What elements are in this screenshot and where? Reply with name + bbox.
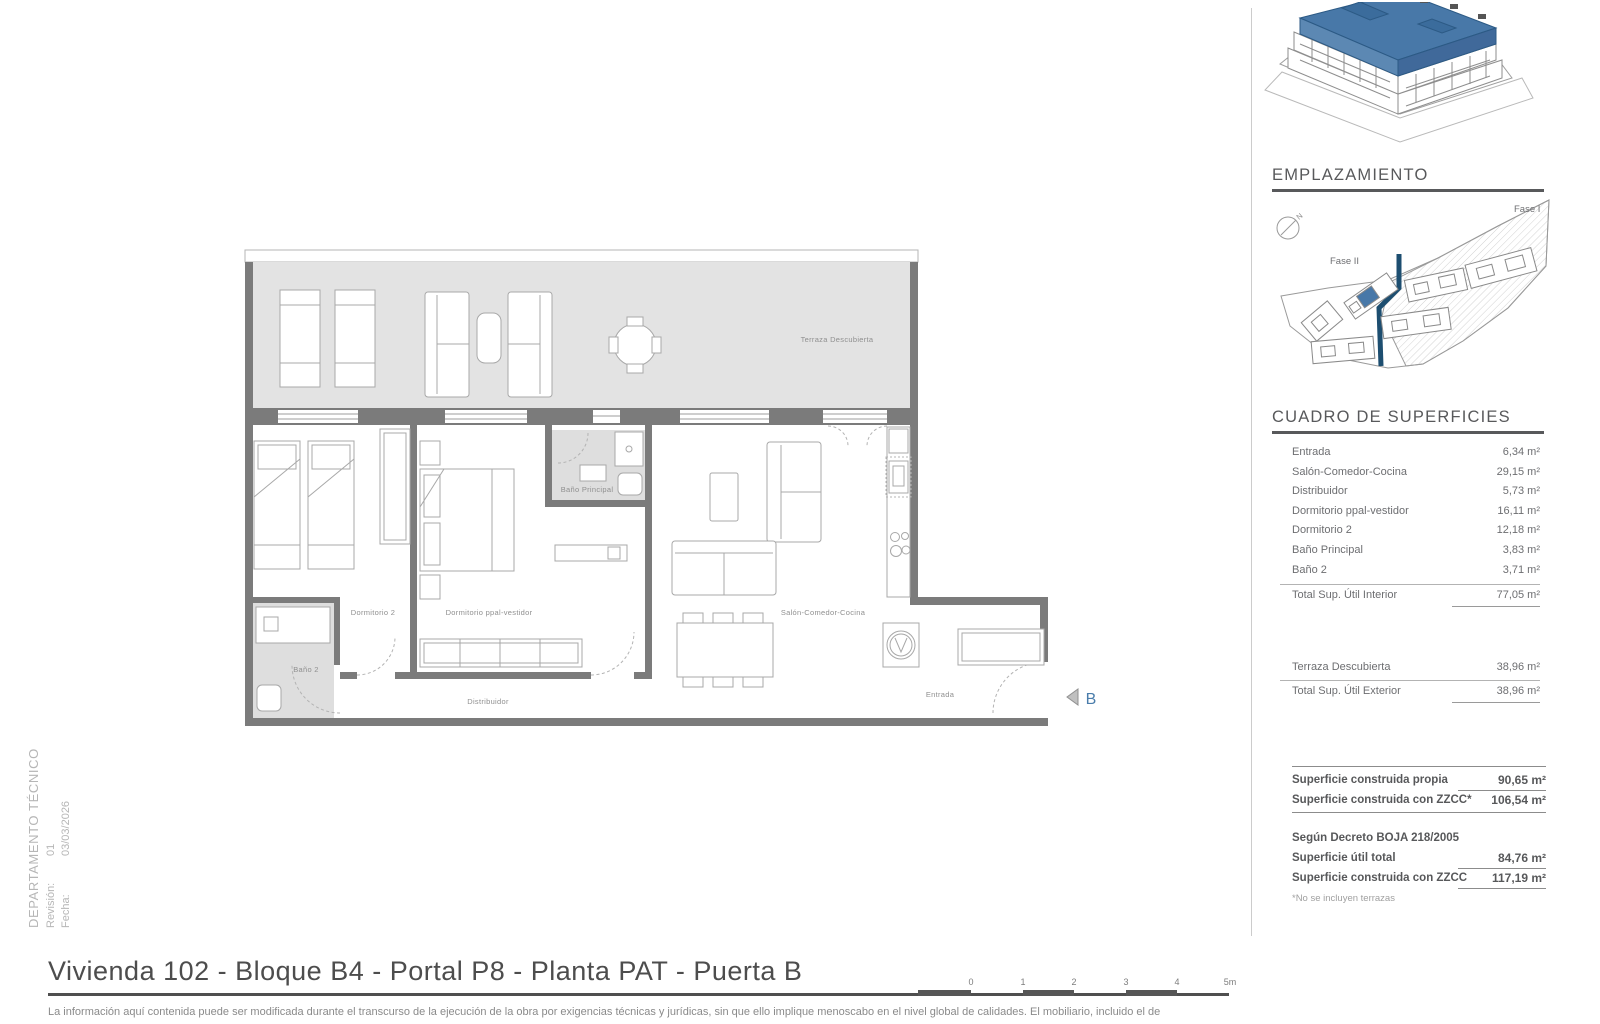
room-label-distribuidor: Distribuidor: [467, 697, 509, 706]
fridge-icon: [889, 429, 908, 453]
total-value: 38,96 m²: [1497, 682, 1540, 702]
summary-value: 90,65 m²: [1498, 770, 1546, 790]
scale-tick: 2: [1071, 977, 1076, 987]
summary-underline: [1458, 888, 1546, 889]
wall-left: [245, 425, 253, 725]
row-value: 6,34 m²: [1503, 443, 1540, 463]
room-label-entrada: Entrada: [926, 690, 955, 699]
summary-underline: [1458, 790, 1546, 791]
legal-disclaimer: La información aquí contenida puede ser …: [48, 1006, 1212, 1018]
summary-value: 106,54 m²: [1491, 790, 1546, 810]
total-interior-row: Total Sup. Útil Interior77,05 m²: [1292, 586, 1540, 606]
row-value: 16,11 m²: [1497, 502, 1540, 522]
wall-bano2: [245, 597, 340, 603]
terrace-parapet: [245, 250, 918, 262]
summary-label: Superficie construida con ZZCC: [1292, 868, 1467, 888]
scale-segment: [918, 990, 971, 996]
sheet-title: Vivienda 102 - Bloque B4 - Portal P8 - P…: [48, 956, 802, 987]
table-row: Entrada6,34 m²: [1292, 443, 1540, 463]
row-label: Baño 2: [1292, 561, 1327, 581]
row-value: 29,15 m²: [1497, 463, 1540, 483]
wall-corridor: [634, 672, 652, 679]
summary-value: 117,19 m²: [1492, 868, 1546, 888]
row-label: Terraza Descubierta: [1292, 658, 1390, 678]
table-separator: [1280, 680, 1540, 681]
dining-set: [677, 613, 773, 687]
wall-corridor: [340, 672, 357, 679]
table-row: Salón-Comedor-Cocina29,15 m²: [1292, 463, 1540, 483]
wall-bano2: [334, 603, 340, 665]
summary-underline: [1458, 868, 1546, 869]
row-label: Dormitorio 2: [1292, 521, 1352, 541]
scale-tick: 0: [968, 977, 973, 987]
door-marker-letter: B: [1086, 691, 1097, 708]
total-label: Total Sup. Útil Exterior: [1292, 682, 1401, 702]
room-label-salon: Salón-Comedor-Cocina: [781, 608, 866, 617]
table-separator: [1280, 584, 1540, 585]
dormppal-door-arc: [591, 632, 634, 675]
fase2-label: Fase II: [1330, 256, 1359, 267]
table-row: Baño 23,71 m²: [1292, 561, 1540, 581]
row-label: Salón-Comedor-Cocina: [1292, 463, 1407, 483]
total-exterior-row: Total Sup. Útil Exterior38,96 m²: [1292, 682, 1540, 702]
row-label: Baño Principal: [1292, 541, 1363, 561]
revision-value: 01: [45, 844, 57, 856]
terrace-wall-right: [910, 262, 918, 408]
sheet-margin-info: DEPARTAMENTO TÉCNICO Revisión:01 Fecha:0…: [26, 688, 74, 928]
wall-bano-principal: [545, 500, 652, 507]
toilet-icon: [618, 473, 642, 495]
table-row: Dormitorio 212,18 m²: [1292, 521, 1540, 541]
coffee-table: [710, 473, 738, 521]
room-label-terraza: Terraza Descubierta: [801, 335, 874, 344]
wall-dormppal-salon: [645, 425, 652, 679]
wall-bano-principal: [545, 425, 552, 507]
summary-label: Superficie útil total: [1292, 848, 1396, 868]
revision-label: Revisión:: [44, 856, 59, 928]
summary-bottom-line: [1292, 812, 1546, 813]
summary-footnote: *No se incluyen terrazas: [1292, 893, 1395, 904]
superficies-table: Entrada6,34 m² Salón-Comedor-Cocina29,15…: [1292, 443, 1540, 580]
row-label: Entrada: [1292, 443, 1331, 463]
total-value: 77,05 m²: [1497, 586, 1540, 606]
superficies-rule: [1272, 431, 1544, 434]
room-label-bano-principal: Baño Principal: [561, 485, 614, 494]
date-label: Fecha:: [59, 856, 74, 928]
site-map: N Fase I Fase II: [1268, 196, 1558, 388]
date-value: 03/03/2026: [60, 801, 72, 856]
table-row: Baño Principal3,83 m²: [1292, 541, 1540, 561]
wall-corridor: [395, 672, 591, 679]
washing-machine-icon: [883, 623, 919, 667]
row-value: 12,18 m²: [1497, 521, 1540, 541]
total-underline: [1452, 606, 1540, 607]
dorm2-door-arc: [357, 637, 395, 675]
wall-salon-right: [910, 425, 918, 605]
emplazamiento-title: EMPLAZAMIENTO: [1272, 166, 1429, 185]
wall-dorm2-dormppal: [410, 425, 417, 679]
date-row: Fecha:03/03/2026: [59, 688, 74, 928]
door-marker: B: [1067, 689, 1096, 708]
terraza-row: Terraza Descubierta38,96 m²: [1292, 658, 1540, 678]
room-label-bano2: Baño 2: [293, 665, 319, 674]
row-value: 5,73 m²: [1503, 482, 1540, 502]
room-label-dormitorio-ppal: Dormitorio ppal-vestidor: [446, 608, 533, 617]
scale-tick: 3: [1123, 977, 1128, 987]
superficies-title: CUADRO DE SUPERFICIES: [1272, 408, 1511, 427]
vanity-icon: [256, 607, 330, 643]
folding-door-arc: [828, 426, 848, 446]
toilet-icon: [257, 685, 281, 711]
wall-bottom: [245, 718, 1048, 726]
floor-plan: Terraza Descubierta: [240, 245, 1100, 735]
scale-segment: [1126, 990, 1177, 996]
door-marker-arrow-icon: [1067, 689, 1078, 705]
sink-icon: [580, 465, 606, 481]
entrance-door-arc: [993, 662, 1044, 713]
decreto-block: Según Decreto BOJA 218/2005 Superficie ú…: [1292, 828, 1546, 888]
decreto-label: Según Decreto BOJA 218/2005: [1292, 828, 1459, 848]
total-underline: [1452, 702, 1540, 703]
department-label: DEPARTAMENTO TÉCNICO: [26, 688, 41, 928]
folding-door-arc: [867, 426, 887, 446]
kitchen-counter: [886, 427, 911, 597]
table-row: Distribuidor5,73 m²: [1292, 482, 1540, 502]
double-bed: [420, 441, 514, 599]
fase1-label: Fase I: [1514, 204, 1540, 215]
wall-entry-top: [910, 597, 1048, 605]
scale-end-label: 5m: [1224, 977, 1237, 987]
summary-value: 84,76 m²: [1498, 848, 1546, 868]
scale-tick: 4: [1174, 977, 1179, 987]
revision-row: Revisión:01: [44, 688, 59, 928]
summary-label: Superficie construida con ZZCC*: [1292, 790, 1472, 810]
nightstand-icon: [420, 575, 440, 599]
room-label-dormitorio2: Dormitorio 2: [351, 608, 395, 617]
table-row: Dormitorio ppal-vestidor16,11 m²: [1292, 502, 1540, 522]
row-value: 3,71 m²: [1503, 561, 1540, 581]
building-3d-render: [1250, 2, 1545, 158]
total-label: Total Sup. Útil Interior: [1292, 586, 1397, 606]
row-value: 38,96 m²: [1497, 658, 1540, 678]
row-label: Dormitorio ppal-vestidor: [1292, 502, 1409, 522]
scale-segment: [1023, 990, 1074, 996]
scale-tick: 1: [1020, 977, 1025, 987]
single-beds: [254, 441, 354, 569]
nightstand-icon: [420, 441, 440, 465]
terrace-wall-left: [245, 262, 253, 408]
summary-label: Superficie construida propia: [1292, 770, 1448, 790]
shower-icon: [615, 432, 643, 466]
salon-sofas: [672, 442, 821, 595]
plan-sheet: DEPARTAMENTO TÉCNICO Revisión:01 Fecha:0…: [0, 0, 1600, 1024]
row-value: 3,83 m²: [1503, 541, 1540, 561]
north-compass-icon: N: [1277, 211, 1304, 239]
emplazamiento-rule: [1272, 189, 1544, 192]
row-label: Distribuidor: [1292, 482, 1348, 502]
entry-closet-icon: [958, 629, 1044, 665]
coffee-table: [477, 313, 501, 363]
summary-top-line: [1292, 766, 1546, 767]
